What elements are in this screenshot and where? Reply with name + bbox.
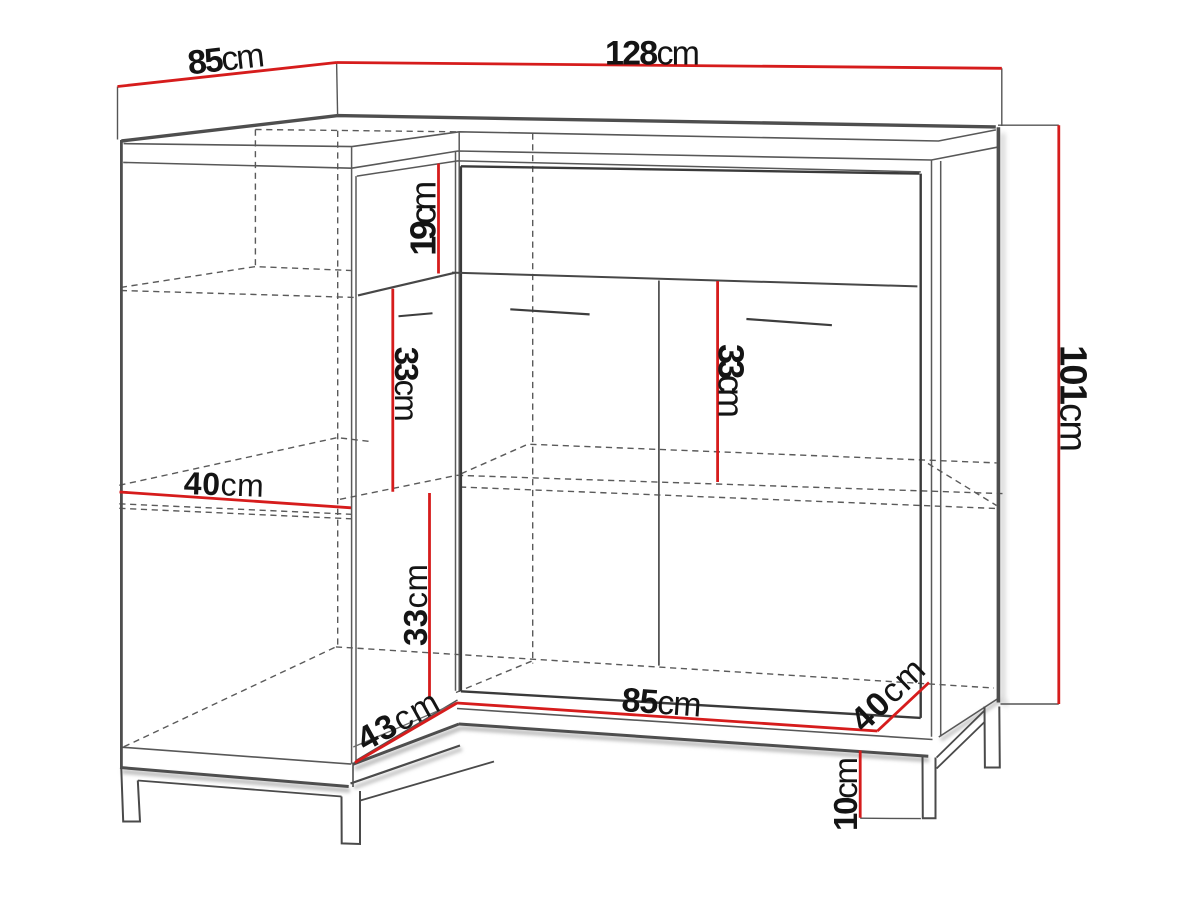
- svg-text:85cm: 85cm: [620, 681, 702, 724]
- svg-text:33cm: 33cm: [397, 564, 434, 646]
- svg-text:128cm: 128cm: [605, 35, 700, 73]
- svg-text:10cm: 10cm: [827, 757, 864, 831]
- svg-text:33cm: 33cm: [388, 347, 425, 422]
- svg-text:19cm: 19cm: [403, 181, 444, 256]
- svg-text:101cm: 101cm: [1052, 345, 1094, 452]
- svg-text:40cm: 40cm: [183, 465, 264, 504]
- svg-text:33cm: 33cm: [711, 344, 752, 418]
